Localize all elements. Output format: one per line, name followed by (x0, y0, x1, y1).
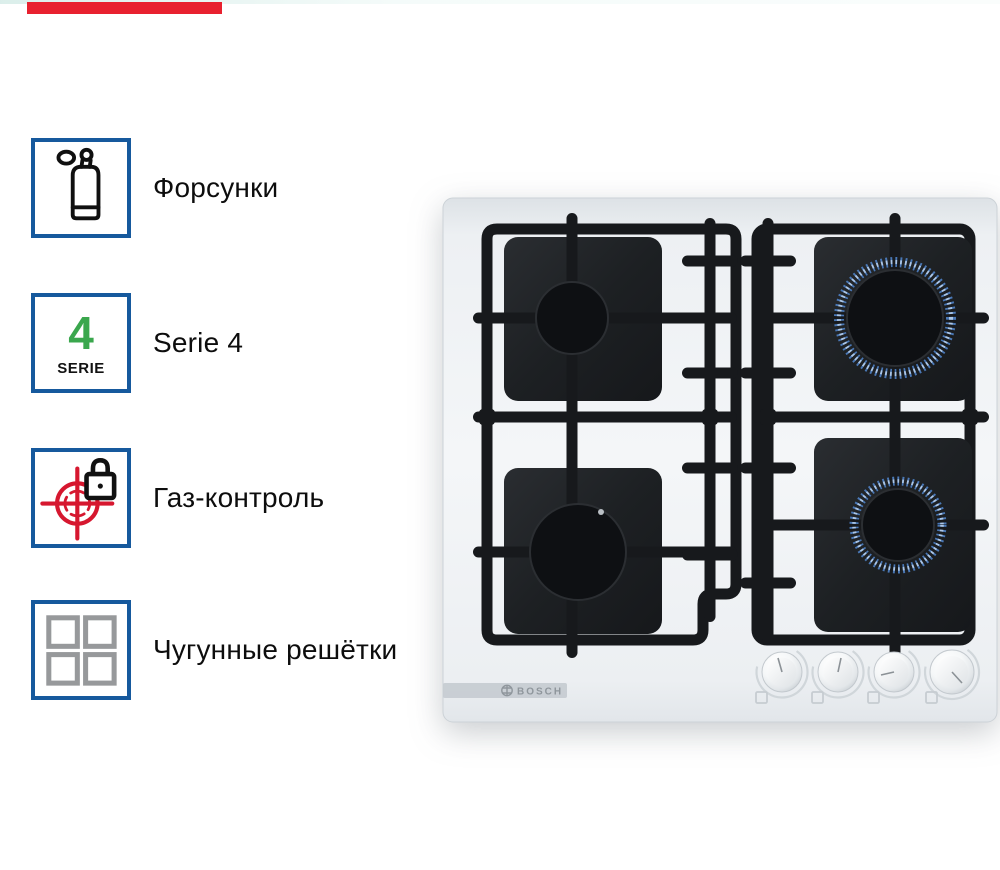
burner-top-left (536, 282, 608, 354)
gas-hob-product-image[interactable]: BOSCH (0, 0, 1000, 870)
product-image-card: Форсунки 4 SERIE Serie 4 (0, 0, 1000, 870)
burner-bottom-left (530, 504, 626, 600)
brand-strip: BOSCH (443, 683, 567, 698)
brand-logo-text: BOSCH (517, 687, 563, 698)
